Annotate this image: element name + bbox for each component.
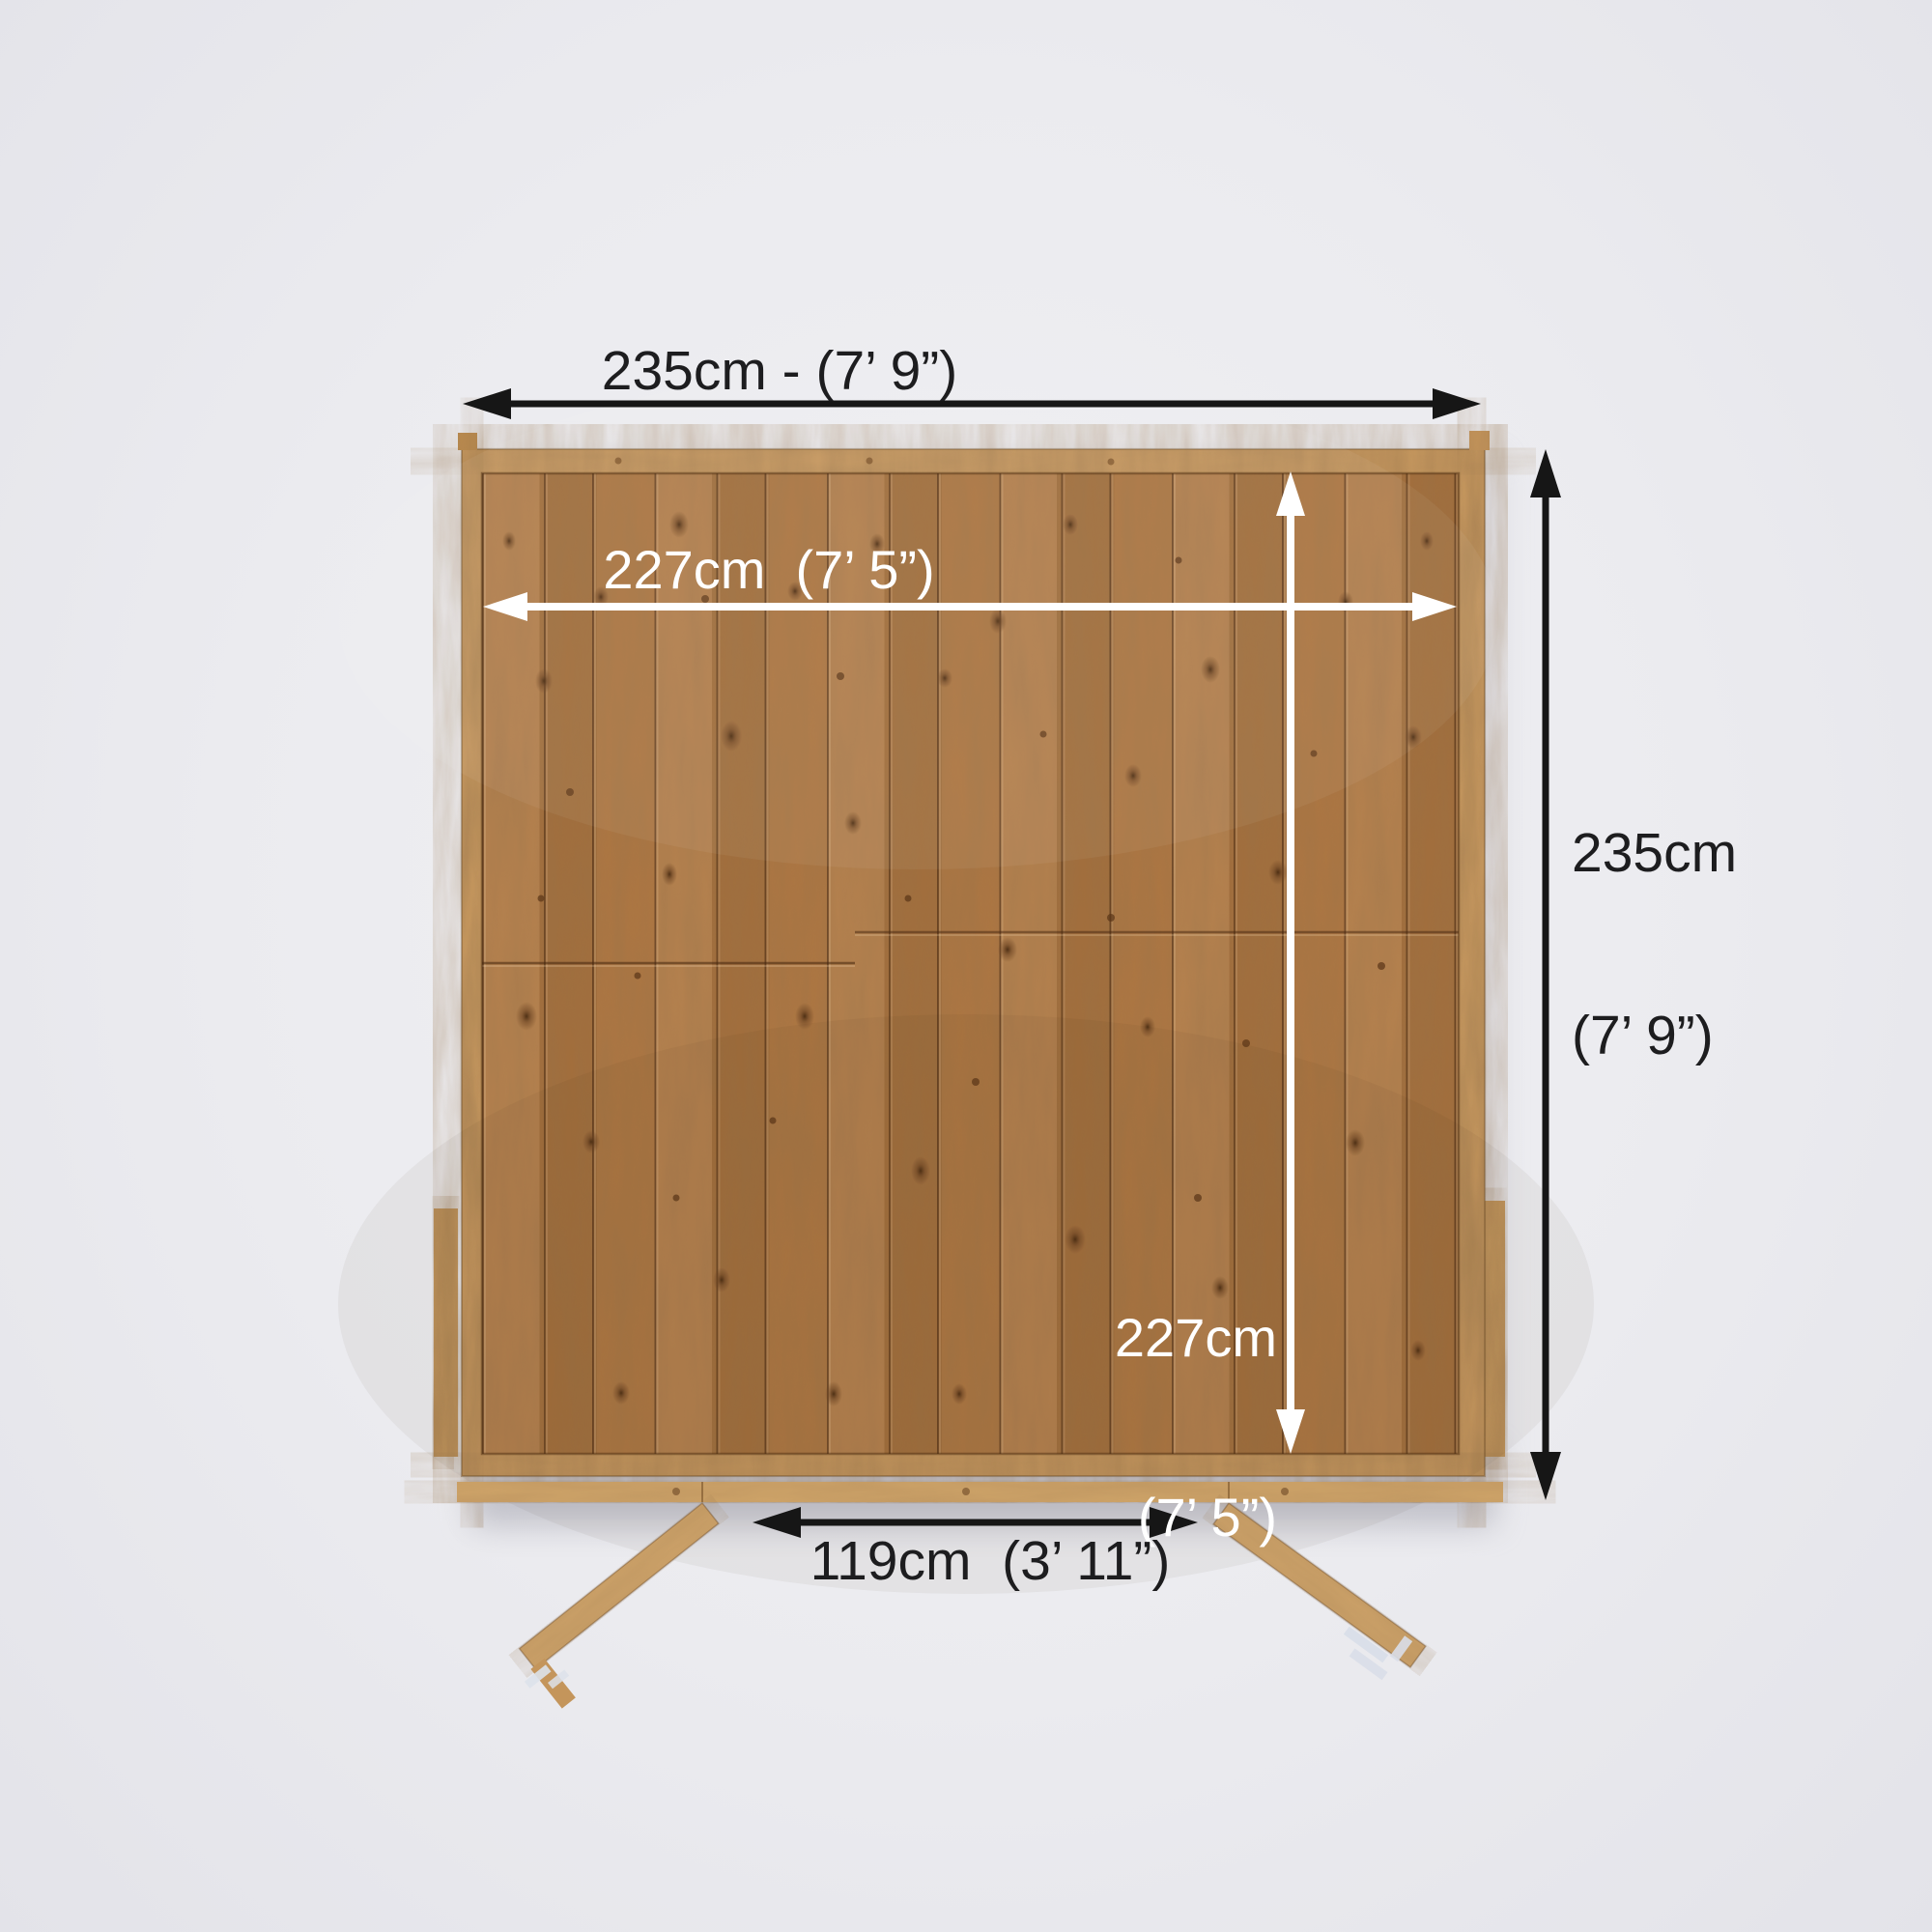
outer-width-label: 235cm - (7’ 9”) — [441, 342, 1118, 400]
arrow-down-head-icon — [1530, 1452, 1561, 1500]
outer-depth-label-line1: 235cm — [1572, 823, 1881, 884]
outer-depth-label-line2: (7’ 9”) — [1572, 1006, 1881, 1066]
inner-depth-label: 227cm (7’ 5”) — [891, 1188, 1277, 1667]
inner-width-label: 227cm (7’ 5”) — [431, 541, 1107, 599]
outer-depth-label: 235cm (7’ 9”) — [1572, 701, 1881, 1188]
shed-dimension-diagram: 235cm - (7’ 9”) 227cm (7’ 5”) 235cm (7’ … — [0, 0, 1932, 1932]
door-width-label: 119cm (3’ 11”) — [652, 1532, 1328, 1590]
arrow-up-head-icon — [1530, 449, 1561, 497]
inner-depth-label-line1: 227cm — [891, 1308, 1277, 1368]
arrow-right-head-icon — [1433, 388, 1481, 419]
